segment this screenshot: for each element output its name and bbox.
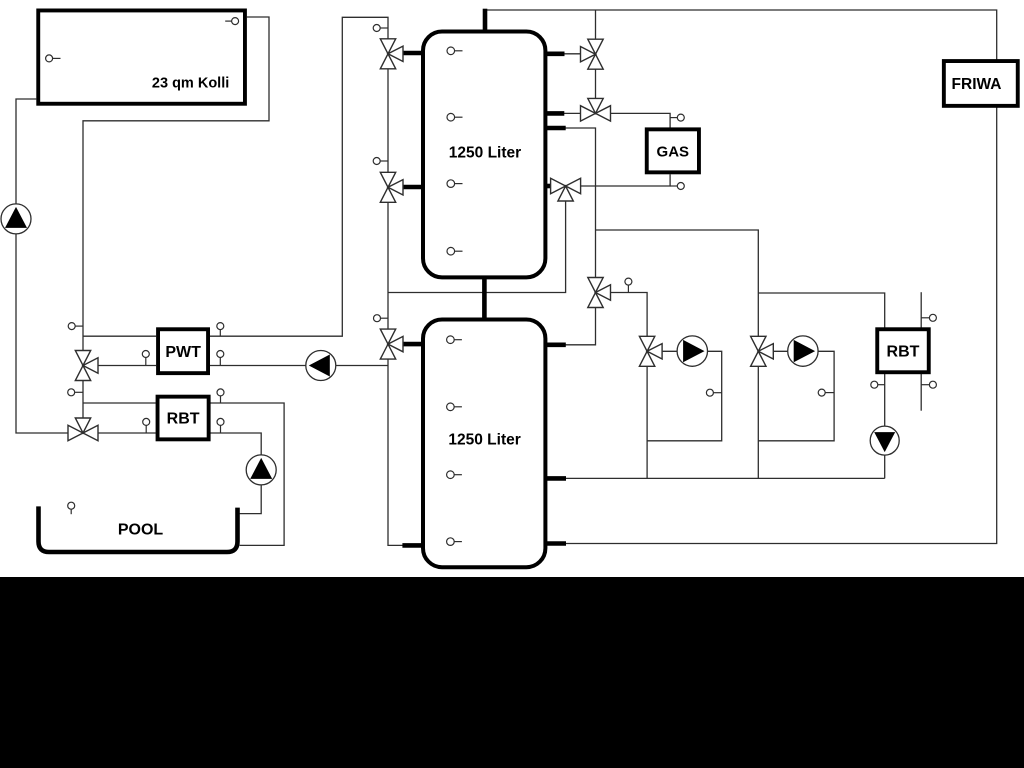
svg-text:GAS: GAS: [657, 143, 690, 160]
svg-text:POOL: POOL: [118, 522, 164, 539]
svg-text:23 qm Kolli: 23 qm Kolli: [152, 76, 229, 92]
svg-text:PWT: PWT: [165, 344, 201, 361]
svg-text:FRIWA: FRIWA: [952, 76, 1002, 93]
svg-text:1250 Liter: 1250 Liter: [448, 432, 520, 449]
svg-text:1250 Liter: 1250 Liter: [449, 144, 521, 161]
svg-text:RBT: RBT: [887, 343, 920, 360]
svg-text:RBT: RBT: [167, 411, 200, 428]
